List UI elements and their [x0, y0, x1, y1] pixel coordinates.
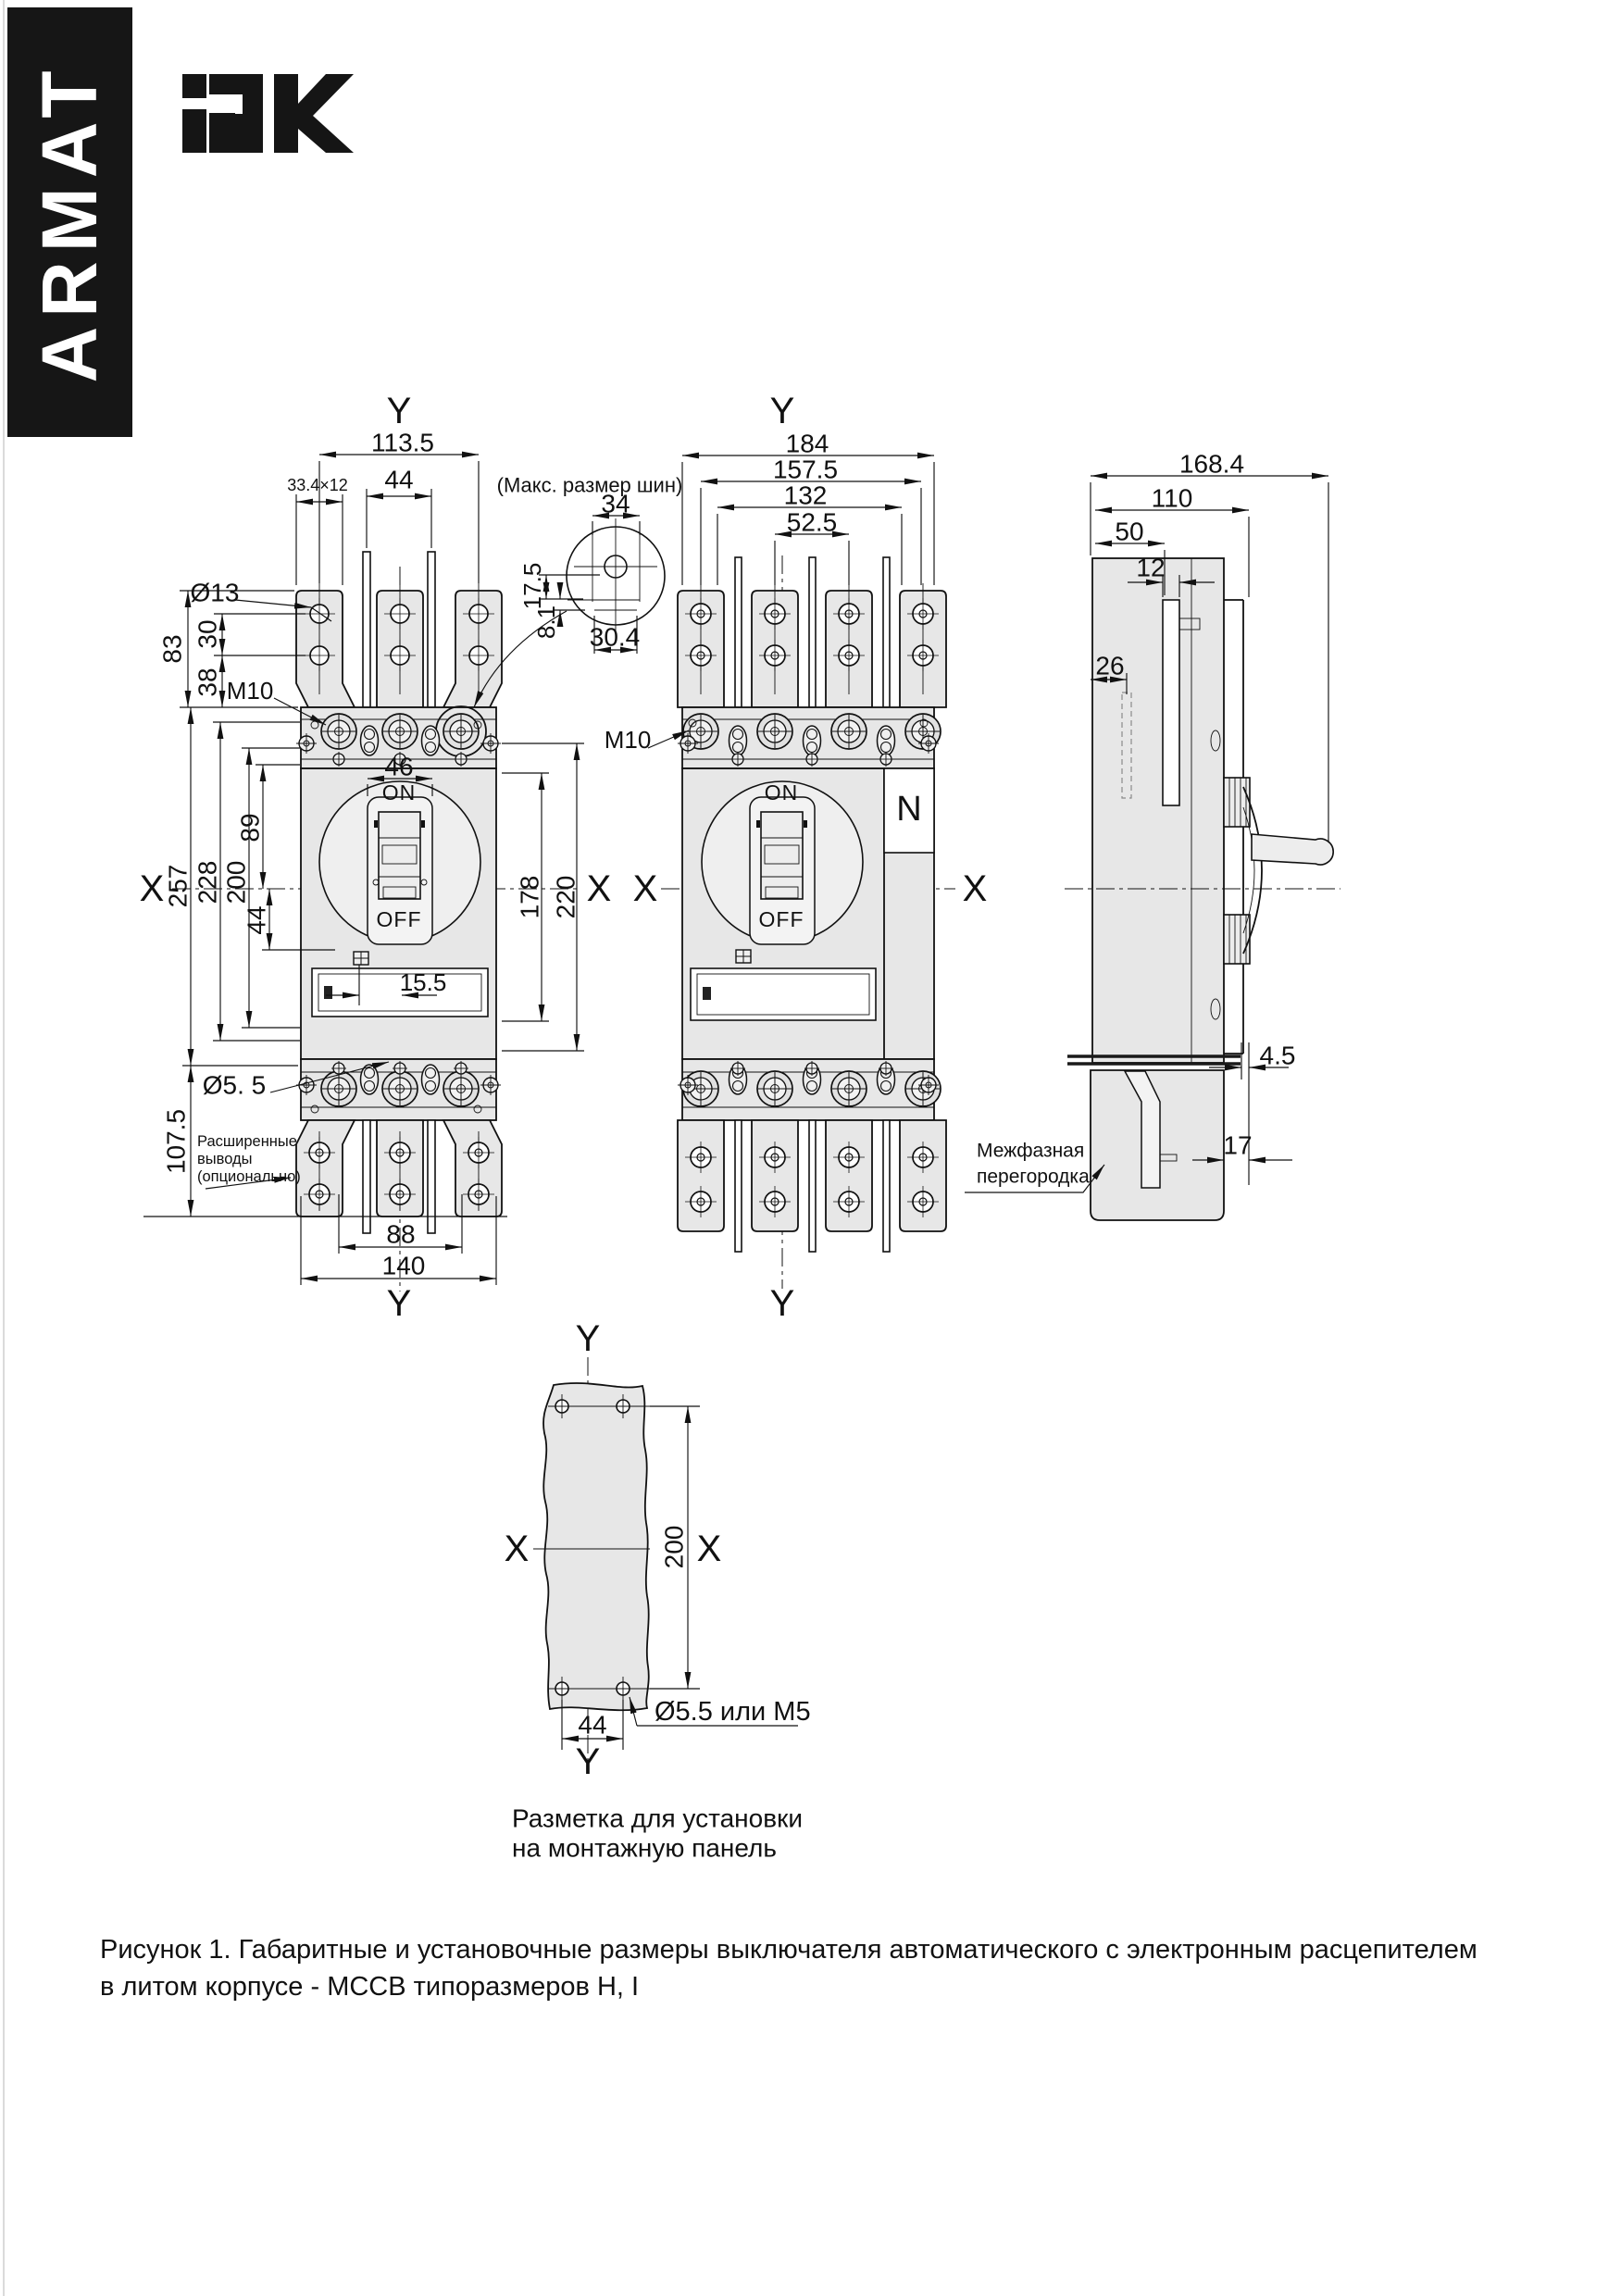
dim-184-label: 184 — [786, 430, 829, 458]
phase-separator — [735, 1120, 742, 1252]
mounting-panel-diagram: Y X X Y 200 Ø5.5 или M5 44 Разметка для … — [505, 1318, 811, 1863]
dim-200: 200 — [222, 748, 301, 1028]
handle-dot — [756, 820, 760, 828]
axis-x-left: X — [140, 868, 165, 909]
handle-dot — [374, 820, 378, 828]
dim-220-label: 220 — [552, 876, 580, 919]
terminal-screw — [382, 1071, 418, 1106]
dim-44-panel-label: 44 — [578, 1711, 606, 1740]
phase-separator — [883, 1120, 890, 1252]
label-window-tab — [324, 986, 332, 999]
dim-200-panel-label: 200 — [660, 1526, 689, 1569]
axis-y-top: Y — [387, 391, 412, 431]
dim-50-label: 50 — [1115, 518, 1143, 546]
dim-132-label: 132 — [784, 481, 828, 510]
panel-outline — [543, 1383, 649, 1710]
dim-44-left-label: 44 — [243, 905, 271, 934]
armat-banner: ARMAT — [7, 7, 132, 437]
dim-113_5-label: 113.5 — [371, 429, 434, 457]
technical-drawing: ARMAT IEK — [0, 0, 1621, 2296]
screw-pair — [729, 726, 747, 755]
axis-y-top: Y — [770, 391, 795, 431]
dim-89-label: 89 — [236, 813, 265, 842]
dim-33_4x12: 33.4×12 — [287, 476, 348, 585]
terminal-screw — [757, 1071, 792, 1106]
note-ext-line3: (опционально) — [197, 1168, 301, 1185]
axis-x-right: X — [587, 868, 612, 909]
logo-i-dot — [182, 74, 206, 98]
dim-17_5-label: 17.5 — [518, 563, 546, 610]
figure-caption-line1: Рисунок 1. Габаритные и установочные раз… — [100, 1935, 1478, 1965]
axis-y-top: Y — [576, 1318, 601, 1359]
handle-dot — [804, 820, 807, 828]
dim-110-label: 110 — [1152, 484, 1193, 513]
screw-pair — [422, 1065, 440, 1094]
callout-panel-hole: Ø5.5 или M5 — [630, 1697, 811, 1727]
handle-dot — [421, 820, 425, 828]
axis-x-left: X — [633, 868, 658, 909]
screw-pair — [361, 1065, 379, 1094]
phase-separator — [735, 557, 742, 707]
dim-168_4-label: 168.4 — [1179, 450, 1244, 479]
note-extended-terminals: Расширенные выводы (опционально) — [197, 1133, 301, 1189]
terminal-screw — [831, 714, 867, 749]
knurled-screw — [1224, 915, 1250, 964]
logo-i-stem — [182, 109, 206, 153]
note-barrier-line2: перегородка — [977, 1167, 1090, 1188]
terminal-screw — [443, 1071, 479, 1106]
dim-lug-hole-label: Ø13 — [191, 579, 240, 607]
dim-228-label: 228 — [193, 861, 222, 905]
knurled-screw — [1224, 778, 1250, 827]
dim-46-label: 46 — [384, 753, 413, 781]
dim-52_5-label: 52.5 — [787, 508, 838, 537]
screw-pair — [422, 726, 440, 755]
dim-140-label: 140 — [382, 1252, 426, 1280]
dim-4_5-label: 4.5 — [1260, 1042, 1296, 1070]
drawing-page: ARMAT IEK — [0, 0, 1621, 2296]
logo-k-upper-arm — [298, 74, 354, 116]
axis-x-right: X — [697, 1529, 722, 1569]
dim-88-label: 88 — [386, 1220, 415, 1249]
dim-33_4x12-label: 33.4×12 — [287, 476, 348, 494]
terminal-screw — [321, 714, 356, 749]
dim-30-label: 30 — [193, 619, 222, 648]
toggle-handle — [761, 812, 803, 899]
toggle-handle — [379, 812, 420, 899]
axis-y-bottom: Y — [770, 1283, 795, 1324]
terminal-screw — [382, 714, 418, 749]
callout-panel-hole-label: Ø5.5 или M5 — [655, 1697, 811, 1727]
logo-k-stem — [274, 74, 298, 153]
front-view-4pole: N ON OFF — [605, 391, 988, 1324]
callout-m10-v2-label: M10 — [605, 726, 652, 754]
note-ext-line2: выводы — [197, 1151, 253, 1167]
axis-x-left: X — [505, 1529, 530, 1569]
dim-257-label: 257 — [164, 865, 193, 908]
callout-m10-v1-label: M10 — [227, 677, 274, 705]
on-label: ON — [382, 780, 417, 805]
dim-38-label: 38 — [193, 668, 222, 696]
axis-x-right: X — [963, 868, 988, 909]
dim-8_1-label: 8.1 — [532, 605, 560, 639]
screw-pair — [361, 726, 379, 755]
front-view-3pole: ON OFF — [140, 391, 612, 1324]
dim-26-label: 26 — [1095, 652, 1124, 680]
logo-k-lower-arm — [298, 116, 354, 153]
figure-caption-line2: в литом корпусе - MCCB типоразмеров H, I — [100, 1972, 639, 2002]
terminal-screw — [757, 714, 792, 749]
panel-caption-line2: на монтажную панель — [512, 1834, 777, 1863]
label-window-tab — [703, 987, 711, 1000]
logo-e-midbar — [209, 113, 235, 131]
note-interphase-barrier: Межфазная перегородка — [965, 1141, 1104, 1193]
screw-pair — [878, 726, 895, 755]
dim-178-label: 178 — [516, 876, 544, 919]
dim-107_5-label: 107.5 — [162, 1109, 191, 1174]
terminal-screw — [831, 1071, 867, 1106]
dim-38: 38 — [193, 655, 223, 707]
side-view: 168.4 110 50 12 26 4.5 — [965, 450, 1340, 1221]
dim-83-label: 83 — [158, 634, 187, 663]
dim-12-label: 12 — [1136, 554, 1165, 582]
off-label: OFF — [759, 907, 804, 931]
dim-34-label: 34 — [601, 490, 630, 518]
dim-mount-hole-label: Ø5. 5 — [203, 1071, 266, 1100]
dim-44-top: 44 — [367, 466, 431, 549]
label-window — [691, 968, 876, 1020]
dim-17-label: 17 — [1223, 1131, 1252, 1160]
phase-separator — [428, 552, 435, 707]
toggle-handle-side — [1252, 834, 1333, 865]
dim-178: 178 — [502, 773, 549, 1021]
figure-caption: Рисунок 1. Габаритные и установочные раз… — [100, 1935, 1478, 2002]
note-barrier-line1: Межфазная — [977, 1141, 1084, 1162]
phase-separator — [809, 1120, 816, 1252]
dim-200-panel: 200 — [660, 1406, 689, 1689]
screw-pair — [804, 726, 821, 755]
panel-caption-line1: Разметка для установки — [512, 1804, 803, 1833]
dim-200-label: 200 — [222, 861, 251, 905]
dim-30: 30 — [193, 614, 306, 655]
side-case — [1092, 558, 1224, 1063]
dim-44-top-label: 44 — [384, 466, 413, 494]
busbar-detail: (Макс. размер шин) 34 17.5 8.1 30 — [474, 474, 682, 708]
dim-113_5: 113.5 — [319, 429, 479, 584]
callout-m10-v2: M10 — [605, 726, 689, 754]
axis-y-bottom: Y — [576, 1741, 601, 1782]
off-label: OFF — [377, 907, 422, 931]
note-ext-line1: Расширенные — [197, 1133, 297, 1150]
phase-separator — [363, 552, 370, 707]
phase-separator — [883, 557, 890, 707]
axis-y-bottom: Y — [387, 1283, 412, 1324]
phase-separator — [809, 557, 816, 707]
dim-15_5-label: 15.5 — [400, 968, 447, 996]
banner-title: ARMAT — [26, 61, 113, 382]
busbar-title: (Макс. размер шин) — [497, 474, 683, 497]
on-label: ON — [765, 780, 799, 805]
dim-30_4-label: 30.4 — [590, 623, 641, 652]
cover-screw — [736, 950, 751, 963]
dim-157_5-label: 157.5 — [773, 455, 838, 484]
terminal-screw — [443, 714, 479, 749]
terminal-screw — [321, 1071, 356, 1106]
cover-screw — [354, 952, 368, 965]
terminal-bar-side — [1163, 600, 1179, 805]
neutral-label: N — [896, 790, 921, 829]
